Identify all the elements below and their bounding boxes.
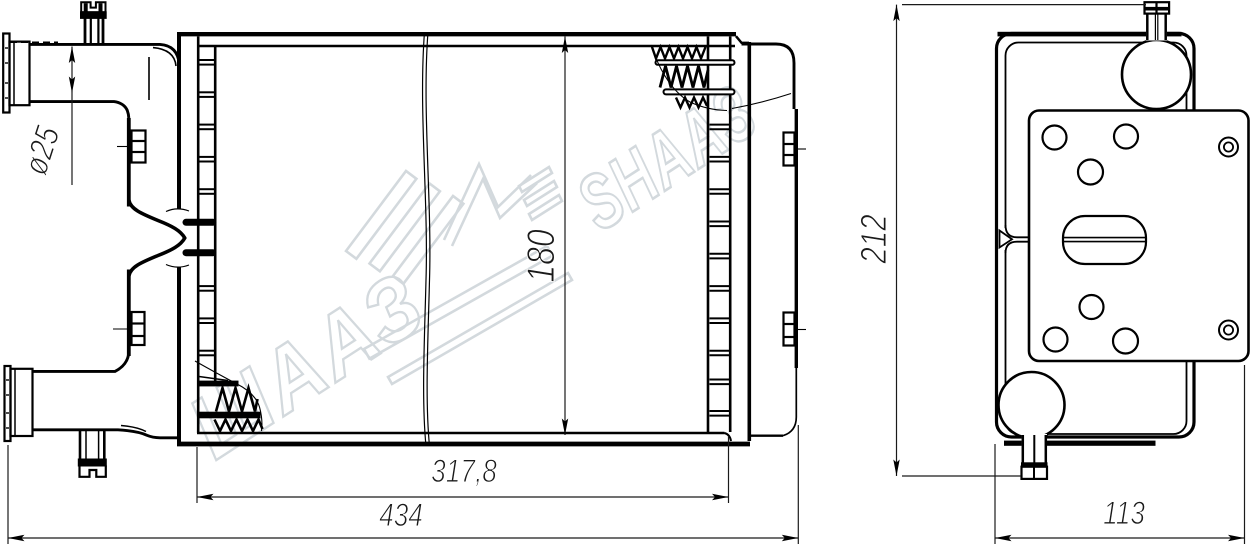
svg-text:434: 434 bbox=[379, 499, 423, 534]
svg-text:212: 212 bbox=[853, 214, 893, 264]
svg-text:113: 113 bbox=[1103, 497, 1145, 532]
svg-text:317,8: 317,8 bbox=[431, 455, 497, 490]
svg-text:180: 180 bbox=[519, 229, 563, 282]
